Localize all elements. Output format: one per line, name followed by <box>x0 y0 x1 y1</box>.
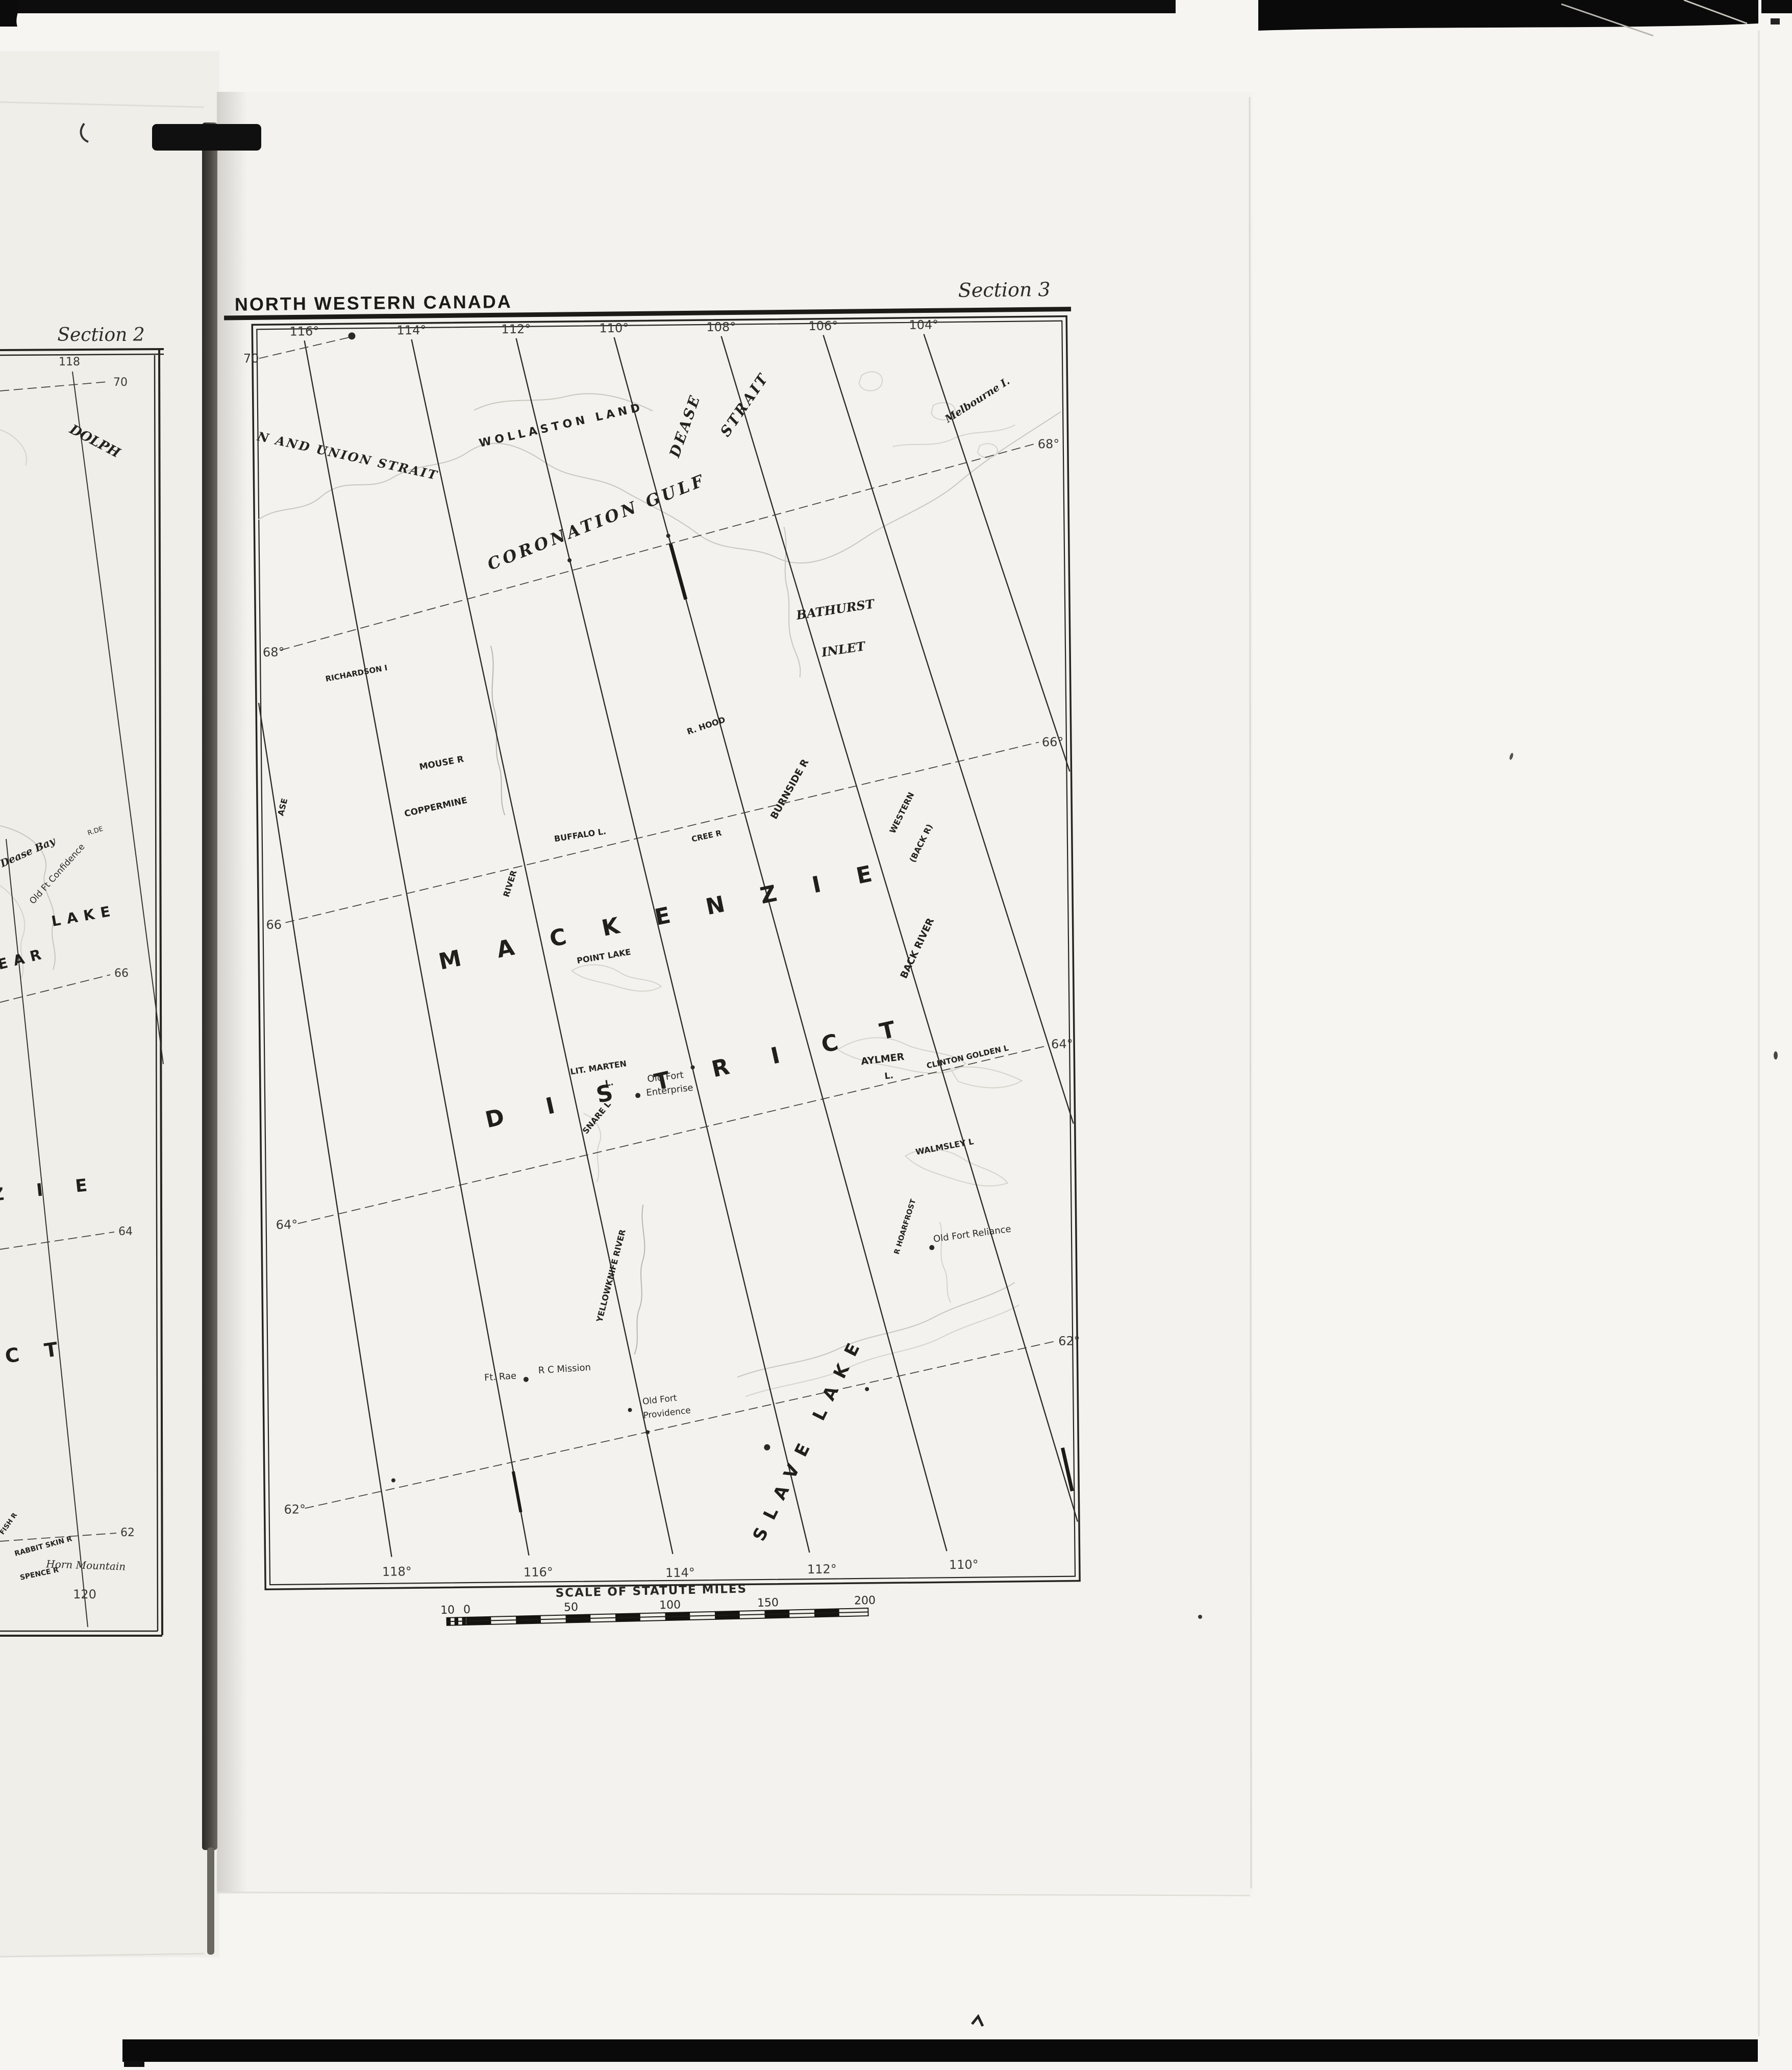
label-aylmer-l: L. <box>884 1070 893 1081</box>
s2-label-120: 120 <box>73 1587 96 1601</box>
scan-speck-top-right <box>1771 18 1780 24</box>
page-fold-shadow <box>217 92 247 1893</box>
s3-lat-68-right: 68° <box>1038 437 1060 451</box>
s2-label-70: 70 <box>113 376 128 389</box>
s3-top-114: 114° <box>396 323 426 338</box>
s3-top-112: 112° <box>501 322 531 337</box>
s3-top-110: 110° <box>599 321 629 336</box>
scan-bar-top-left <box>17 0 1176 13</box>
section2-title: Section 2 <box>57 325 144 346</box>
s3-top-116: 116° <box>289 324 319 339</box>
scanned-atlas-page: Section 2 118 70 66 64 62 120 DOLPH Deas… <box>0 0 1792 2070</box>
s3-lat-66-left: 66 <box>266 918 282 932</box>
s3-lat-64-right: 64° <box>1051 1037 1073 1051</box>
s3-top-106: 106° <box>808 318 838 333</box>
scale-tick-0: 0 <box>463 1604 471 1616</box>
scan-bar-bottom-nub <box>124 2061 144 2067</box>
page-corner-black-tab <box>152 124 261 151</box>
scale-tick-100: 100 <box>659 1598 681 1612</box>
scale-tick-50: 50 <box>564 1601 579 1614</box>
s3-lat-68-left: 68° <box>263 645 285 659</box>
scale-tick-150: 150 <box>757 1596 779 1610</box>
s3-lat-70: 70 <box>243 351 259 365</box>
s3-lat-62-right: 62° <box>1058 1334 1080 1348</box>
s2-frame-top-outer <box>0 349 164 350</box>
s3-bot-112: 112° <box>807 1562 837 1577</box>
s3-lat-66-right: 66° <box>1042 735 1064 749</box>
label-lit-marten-l: L. <box>605 1077 614 1088</box>
s3-bot-116: 116° <box>524 1565 553 1580</box>
right-page-paper <box>217 92 1253 1893</box>
scan-bar-bottom <box>122 2039 1758 2062</box>
s2-label-118: 118 <box>59 356 80 368</box>
s3-top-108: 108° <box>706 319 736 334</box>
s2-label-64: 64 <box>118 1225 133 1238</box>
s2-label-62: 62 <box>120 1526 135 1539</box>
s3-top-104: 104° <box>909 317 938 332</box>
book-gutter <box>202 122 217 1850</box>
label-ft-rae: Ft. Rae <box>484 1370 516 1383</box>
speck-near-scale <box>1198 1615 1202 1619</box>
scan-bar-top-corner <box>1761 0 1792 13</box>
s3-bot-110: 110° <box>949 1558 979 1572</box>
atlas-scan-svg: Section 2 118 70 66 64 62 120 DOLPH Deas… <box>0 0 1792 2070</box>
s2-label-66: 66 <box>114 967 129 980</box>
s3-bot-118: 118° <box>382 1564 412 1579</box>
scale-tick-200: 200 <box>854 1594 876 1608</box>
s3-lat-62-left: 62° <box>284 1502 306 1516</box>
book-gutter-tail <box>207 1847 214 1955</box>
s3-bot-114: 114° <box>665 1565 695 1580</box>
s3-lat-64-left: 64° <box>276 1218 298 1232</box>
scale-tick-10: 10 <box>440 1604 455 1617</box>
page-title: NORTH WESTERN CANADA <box>235 291 512 315</box>
section3-title: Section 3 <box>958 278 1051 302</box>
speck-right-margin <box>1774 1051 1778 1059</box>
